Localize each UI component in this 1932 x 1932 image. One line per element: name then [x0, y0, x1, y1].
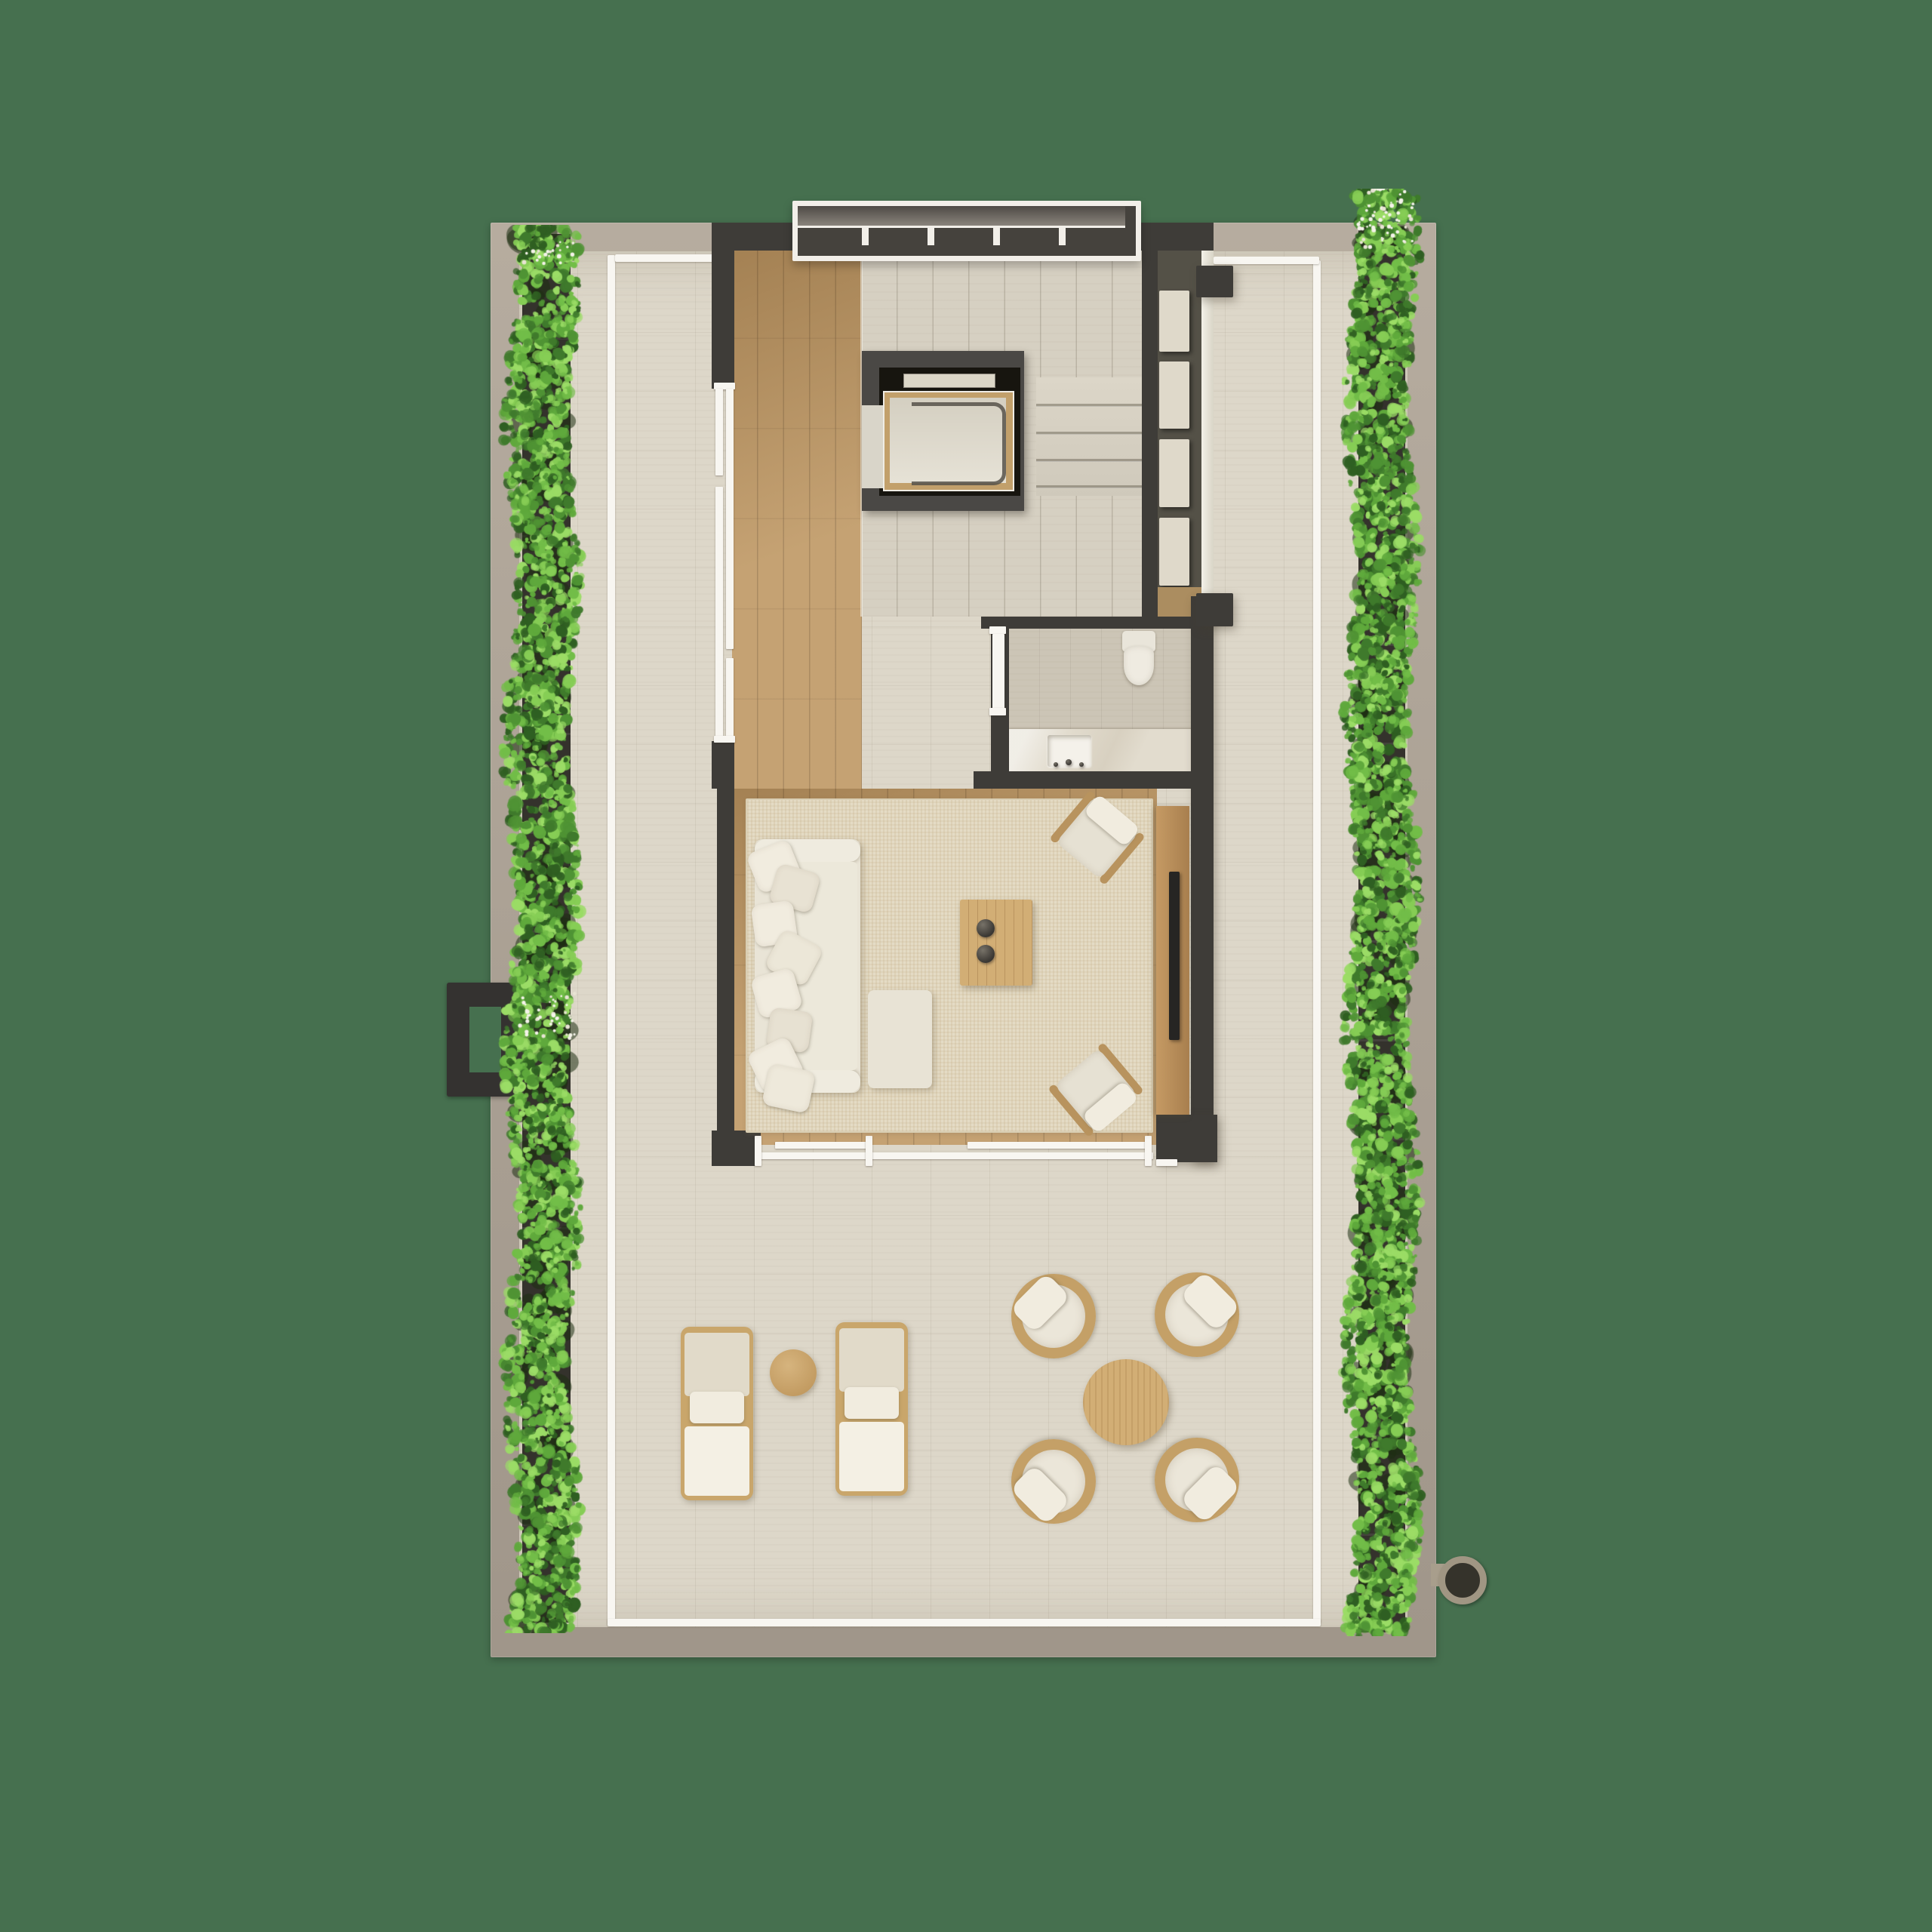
- perimeter-line-north-west: [615, 254, 713, 262]
- bathroom-south-wall: [974, 771, 1193, 789]
- pergola-glass-strip: [798, 206, 1125, 226]
- wardrobe-unit: [1159, 361, 1189, 429]
- hedge-west: [494, 225, 589, 1633]
- west-glazing-cap-bottom: [714, 736, 735, 743]
- pergola-mullion: [993, 227, 1000, 245]
- west-glazing-track: [726, 389, 734, 649]
- south-glazing-cap: [866, 1136, 872, 1166]
- south-glazing-rail: [758, 1152, 1153, 1159]
- bathroom-north-wall: [981, 617, 1214, 629]
- west-glazing-track: [726, 658, 734, 741]
- sink-tap-right: [1079, 762, 1084, 767]
- west-wall-pier-north: [712, 251, 734, 389]
- facade-utility-box-north: [1196, 266, 1233, 297]
- drain-pipe: [1438, 1556, 1487, 1604]
- bathroom-door-jamb: [989, 708, 1006, 715]
- stair-tread-edge: [1036, 404, 1142, 407]
- south-glazing-cap: [1145, 1136, 1152, 1166]
- pergola-mullion: [1059, 227, 1066, 245]
- coffee-table: [960, 900, 1032, 986]
- east-wall: [1191, 596, 1214, 1162]
- facade-utility-box-south: [1196, 593, 1233, 626]
- wardrobe-unit: [1159, 291, 1189, 352]
- sun-lounger-right: [835, 1322, 908, 1496]
- elevator-handrail: [912, 402, 1006, 485]
- stair-tread-edge: [1036, 432, 1142, 435]
- sink-faucet: [1066, 759, 1072, 765]
- pergola-mullion: [928, 227, 934, 245]
- pergola-mullion: [862, 227, 869, 245]
- pergola-rail: [798, 226, 1125, 228]
- tv: [1169, 872, 1180, 1040]
- hall-wood-floor: [732, 251, 862, 789]
- outdoor-round-table: [1083, 1359, 1169, 1445]
- wardrobe-unit: [1159, 518, 1189, 586]
- stair-tread-edge: [1036, 485, 1142, 488]
- living-west-wall: [717, 789, 734, 1145]
- bathroom-door-leaf: [992, 634, 1004, 709]
- side-table: [770, 1349, 817, 1396]
- skylight-pergola: [792, 201, 1141, 261]
- elevator-side-panel: [862, 405, 883, 488]
- decor-bowl: [977, 919, 995, 937]
- perimeter-line-south: [608, 1619, 1321, 1626]
- perimeter-line-north-east: [1214, 257, 1319, 264]
- wardrobe-wall: [1142, 251, 1158, 617]
- stair-tread-edge: [1036, 459, 1142, 462]
- sun-lounger-left: [681, 1327, 753, 1500]
- perimeter-line-east: [1313, 260, 1321, 1623]
- south-east-corner-wall: [1156, 1115, 1217, 1162]
- wardrobe-unit: [1159, 439, 1189, 507]
- west-glazing-track: [715, 389, 723, 475]
- floor-plan-scene: [0, 0, 1932, 1932]
- west-wall-pier-mid: [712, 741, 734, 789]
- vanity-counter: [1009, 729, 1193, 771]
- east-glass-strip: [1201, 251, 1214, 596]
- south-wall-west-block: [712, 1131, 761, 1166]
- ottoman: [868, 990, 932, 1088]
- elevator-door-panel: [903, 374, 995, 388]
- south-glazing-stub: [1156, 1159, 1177, 1166]
- perimeter-line-west: [608, 255, 615, 1625]
- toilet-bowl: [1124, 646, 1154, 685]
- south-glazing-cap: [755, 1136, 761, 1166]
- stair-flight: [1036, 377, 1142, 496]
- bathroom-floor: [1009, 629, 1193, 729]
- sink-tap-left: [1054, 762, 1058, 767]
- south-glazing-rail: [775, 1142, 869, 1149]
- hedge-east: [1334, 189, 1429, 1636]
- decor-bowl: [977, 945, 995, 963]
- south-glazing-rail: [968, 1142, 1149, 1149]
- west-glazing-track: [715, 487, 723, 741]
- bathroom-door-jamb: [989, 626, 1006, 634]
